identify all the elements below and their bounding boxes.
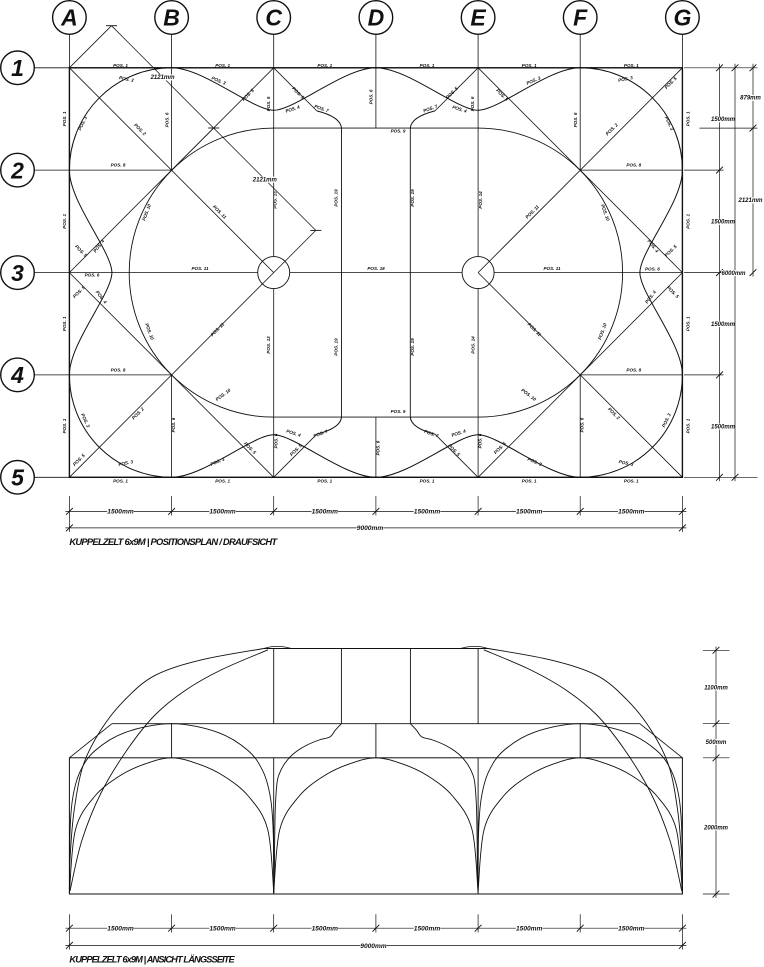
svg-text:1500mm: 1500mm — [711, 220, 736, 226]
svg-text:POS. 1: POS. 1 — [62, 316, 67, 331]
svg-text:1100mm: 1100mm — [704, 685, 728, 691]
svg-text:POS. 1: POS. 1 — [215, 479, 230, 484]
svg-text:POS. 1: POS. 1 — [624, 63, 639, 68]
svg-text:POS. 19: POS. 19 — [410, 189, 415, 207]
svg-text:F: F — [573, 5, 588, 31]
svg-text:POS. 1: POS. 1 — [522, 479, 537, 484]
svg-text:POS. 14: POS. 14 — [471, 336, 476, 354]
svg-text:POS. 11: POS. 11 — [543, 266, 560, 271]
svg-text:1: 1 — [11, 55, 24, 81]
svg-text:9000mm: 9000mm — [360, 943, 387, 950]
svg-text:POS. 13: POS. 13 — [273, 191, 278, 209]
svg-text:POS. 9: POS. 9 — [391, 129, 406, 134]
svg-text:1500mm: 1500mm — [414, 925, 441, 932]
svg-text:POS. 1: POS. 1 — [522, 63, 537, 68]
svg-text:POS. 8: POS. 8 — [626, 163, 641, 168]
svg-text:9000mm: 9000mm — [357, 525, 384, 532]
svg-text:2121mm: 2121mm — [150, 75, 176, 81]
svg-text:KUPPELZELT 6x9M | POSITIONSPLA: KUPPELZELT 6x9M | POSITIONSPLAN / DRAUFS… — [69, 536, 278, 547]
svg-text:2000mm: 2000mm — [703, 825, 729, 831]
svg-text:POS. 6: POS. 6 — [573, 112, 578, 127]
svg-text:1500mm: 1500mm — [107, 509, 134, 516]
svg-text:B: B — [163, 5, 180, 31]
svg-text:1500mm: 1500mm — [209, 925, 236, 932]
svg-text:POS. 8: POS. 8 — [111, 367, 126, 372]
svg-text:1500mm: 1500mm — [209, 509, 236, 516]
svg-text:C: C — [265, 5, 282, 31]
svg-text:POS. 19: POS. 19 — [334, 189, 339, 207]
svg-text:1500mm: 1500mm — [711, 117, 736, 123]
svg-text:POS. 1: POS. 1 — [317, 479, 332, 484]
svg-text:POS. 6: POS. 6 — [375, 440, 380, 455]
svg-text:POS. 19: POS. 19 — [410, 338, 415, 356]
svg-text:POS. 18: POS. 18 — [367, 266, 385, 271]
svg-text:A: A — [60, 5, 78, 31]
svg-text:POS. 1: POS. 1 — [685, 214, 690, 229]
svg-text:POS. 1: POS. 1 — [62, 418, 67, 433]
svg-text:POS. 1: POS. 1 — [420, 479, 435, 484]
svg-text:POS. 6: POS. 6 — [579, 417, 584, 432]
svg-text:1500mm: 1500mm — [107, 925, 134, 932]
svg-text:2121mm: 2121mm — [252, 178, 278, 184]
svg-text:500mm: 500mm — [706, 740, 727, 746]
svg-text:POS. 1: POS. 1 — [685, 316, 690, 331]
svg-text:6000mm: 6000mm — [721, 271, 746, 277]
svg-text:POS. 6: POS. 6 — [645, 267, 660, 272]
svg-text:879mm: 879mm — [740, 96, 761, 102]
svg-text:POS. 6: POS. 6 — [85, 273, 100, 278]
svg-text:4: 4 — [10, 362, 24, 388]
svg-text:POS. 19: POS. 19 — [334, 338, 339, 356]
svg-text:POS. 6: POS. 6 — [273, 433, 278, 448]
svg-text:POS. 1: POS. 1 — [113, 63, 128, 68]
svg-text:POS. 1: POS. 1 — [62, 214, 67, 229]
svg-text:POS. 13: POS. 13 — [266, 336, 271, 354]
svg-text:POS. 6: POS. 6 — [470, 96, 475, 111]
svg-text:POS. 1: POS. 1 — [624, 479, 639, 484]
svg-text:POS. 1: POS. 1 — [62, 111, 67, 126]
svg-text:POS. 14: POS. 14 — [478, 191, 483, 209]
svg-text:POS. 6: POS. 6 — [369, 89, 374, 104]
svg-text:2121mm: 2121mm — [737, 198, 763, 204]
svg-text:POS. 1: POS. 1 — [113, 479, 128, 484]
svg-text:POS. 6: POS. 6 — [165, 112, 170, 127]
svg-text:5: 5 — [11, 465, 25, 491]
svg-text:1500mm: 1500mm — [516, 509, 543, 516]
svg-text:POS. 9: POS. 9 — [391, 409, 406, 414]
svg-text:1500mm: 1500mm — [312, 509, 339, 516]
svg-text:POS. 1: POS. 1 — [685, 111, 690, 126]
svg-text:POS. 8: POS. 8 — [626, 367, 641, 372]
svg-text:POS. 8: POS. 8 — [111, 163, 126, 168]
svg-text:1500mm: 1500mm — [711, 322, 736, 328]
svg-text:POS. 11: POS. 11 — [191, 266, 208, 271]
svg-text:D: D — [368, 5, 385, 31]
svg-text:KUPPELZELT 6x9M | ANSICHT LÄNG: KUPPELZELT 6x9M | ANSICHT LÄNGSSEITE — [69, 955, 235, 965]
svg-text:POS. 6: POS. 6 — [478, 433, 483, 448]
svg-text:1500mm: 1500mm — [711, 424, 736, 430]
svg-text:1500mm: 1500mm — [618, 925, 645, 932]
svg-text:POS. 1: POS. 1 — [420, 63, 435, 68]
svg-text:3: 3 — [11, 260, 24, 286]
svg-text:POS. 1: POS. 1 — [685, 418, 690, 433]
svg-text:POS. 1: POS. 1 — [317, 63, 332, 68]
svg-text:E: E — [470, 5, 486, 31]
svg-text:G: G — [673, 5, 691, 31]
svg-text:POS. 1: POS. 1 — [215, 63, 230, 68]
svg-text:1500mm: 1500mm — [516, 925, 543, 932]
svg-text:POS. 6: POS. 6 — [266, 96, 271, 111]
svg-text:POS. 6: POS. 6 — [171, 417, 176, 432]
svg-text:2: 2 — [10, 157, 24, 183]
svg-text:1500mm: 1500mm — [312, 925, 339, 932]
svg-text:1500mm: 1500mm — [414, 509, 441, 516]
svg-text:1500mm: 1500mm — [618, 509, 645, 516]
